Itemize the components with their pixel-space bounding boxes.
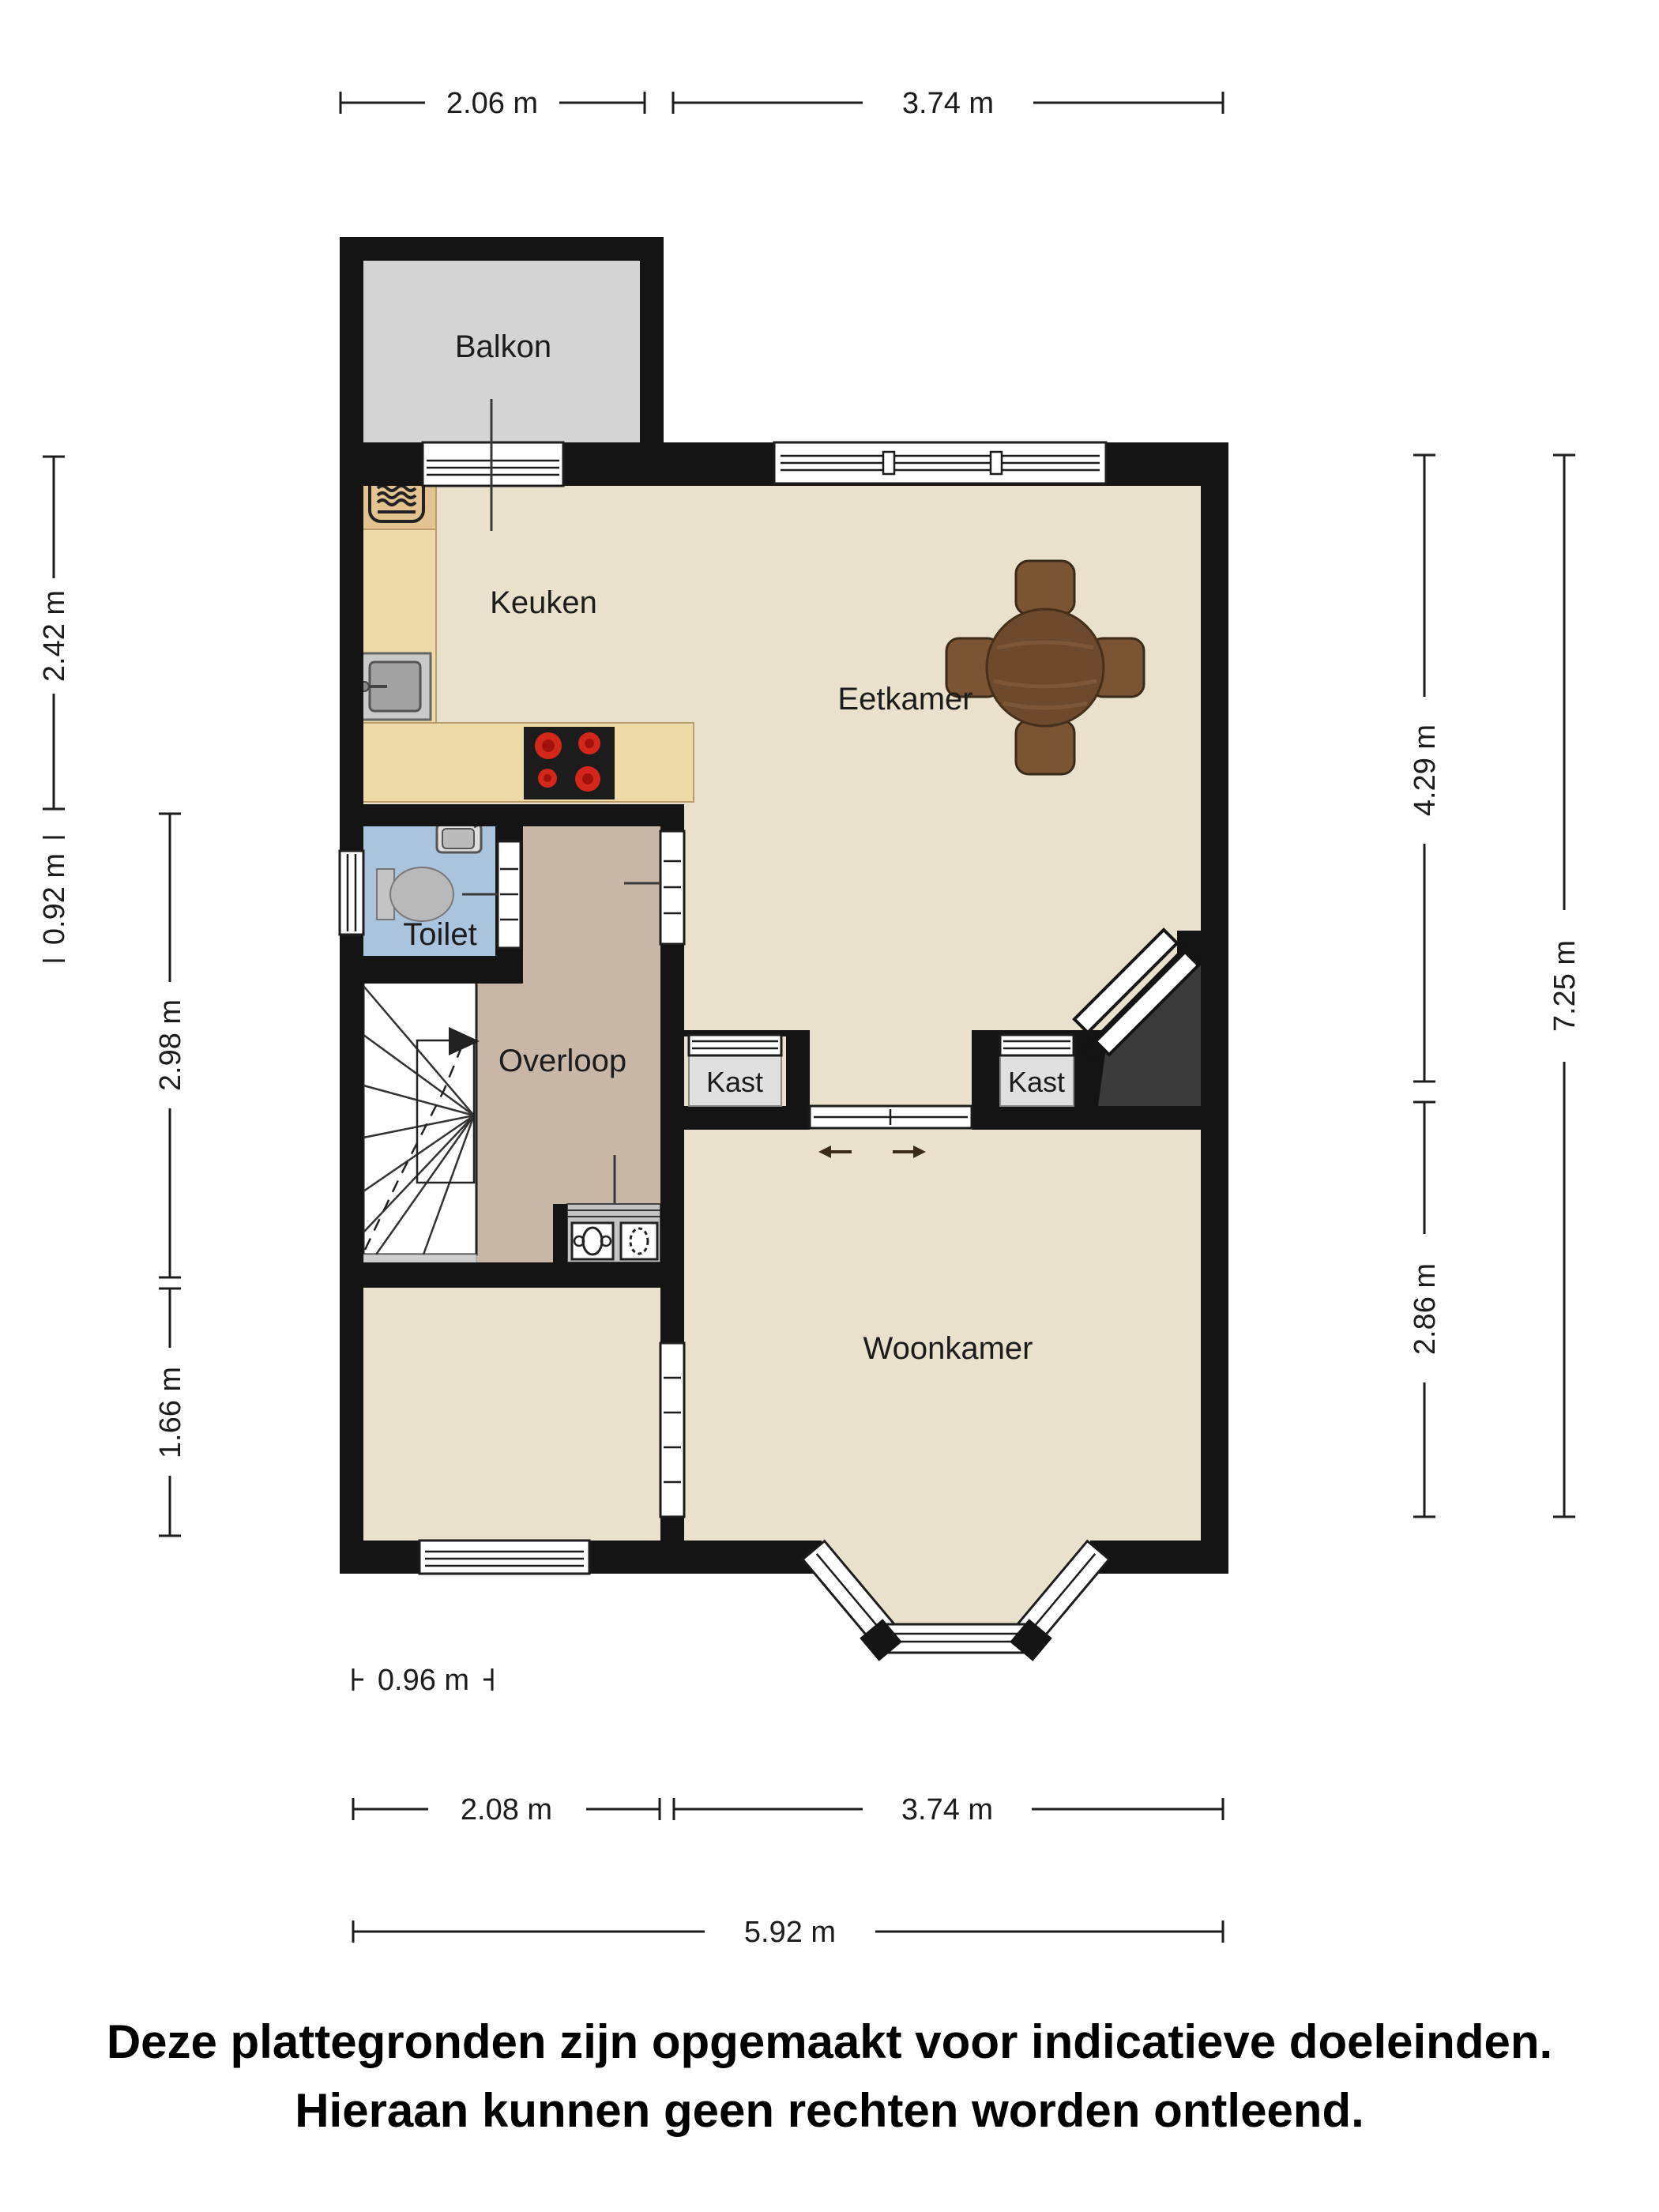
svg-text:3.74 m: 3.74 m [901, 1793, 993, 1826]
wall-balkon-top [340, 237, 664, 261]
wall-under-kast-right [972, 1106, 1201, 1130]
kast-right-front [1000, 1035, 1074, 1055]
disclaimer: Deze plattegronden zijn opgemaakt voor i… [107, 2015, 1552, 2137]
sink-icon [359, 653, 431, 720]
svg-text:2.06 m: 2.06 m [446, 87, 538, 120]
side-room-window [419, 1540, 589, 1574]
side-room-door [660, 1343, 684, 1517]
wall-under-kast-left [684, 1106, 810, 1130]
dimension-right-eetkamer: 4.29 m [1409, 455, 1442, 1082]
cooktop-icon [524, 727, 615, 799]
dimension-left-toilet: 0.92 m [38, 837, 71, 961]
svg-text:2.42 m: 2.42 m [38, 590, 71, 682]
dimension-right-total: 7.25 m [1548, 455, 1582, 1517]
stairs-icon [363, 976, 480, 1266]
wall-bottom-b [589, 1540, 822, 1574]
dimension-bottom-total: 5.92 m [353, 1916, 1223, 1949]
disclaimer-line-2: Hieraan kunnen geen rechten worden ontle… [295, 2084, 1364, 2137]
dimension-bottom-left: 2.08 m [353, 1793, 660, 1826]
wall-toilet-bottom [340, 956, 523, 984]
kast-left-front [689, 1035, 781, 1055]
svg-text:0.92 m: 0.92 m [38, 853, 71, 945]
wall-keuken-toilet [340, 804, 684, 826]
wall-bottom-a [340, 1540, 419, 1574]
label-kast-left: Kast [706, 1066, 763, 1098]
label-overloop: Overloop [498, 1044, 626, 1078]
svg-text:2.86 m: 2.86 m [1409, 1263, 1442, 1355]
dryer-icon [621, 1223, 657, 1259]
label-balkon: Balkon [455, 329, 551, 364]
washer-icon [572, 1223, 613, 1259]
wall-laundry-stub [553, 1204, 567, 1262]
svg-text:5.92 m: 5.92 m [744, 1916, 836, 1949]
dimension-right-woonkamer: 2.86 m [1409, 1102, 1442, 1517]
label-keuken: Keuken [490, 585, 597, 620]
svg-text:2.98 m: 2.98 m [154, 999, 187, 1091]
label-eetkamer: Eetkamer [837, 682, 972, 717]
wall-overloop-bottom [340, 1262, 684, 1288]
svg-text:4.29 m: 4.29 m [1409, 724, 1442, 816]
toilet-window [340, 851, 363, 935]
svg-text:3.74 m: 3.74 m [902, 87, 994, 120]
dimension-left-room: 1.66 m [154, 1288, 187, 1536]
dimension-top-right: 3.74 m [673, 87, 1223, 120]
disclaimer-line-1: Deze plattegronden zijn opgemaakt voor i… [107, 2015, 1552, 2068]
dimension-left-overloop: 2.98 m [154, 814, 187, 1277]
svg-text:7.25 m: 7.25 m [1548, 940, 1582, 1032]
label-kast-right: Kast [1008, 1066, 1065, 1098]
wall-right [1201, 442, 1228, 1572]
dimension-top-left: 2.06 m [340, 87, 645, 120]
eetkamer-window [774, 442, 1106, 483]
washbasin-icon [437, 822, 483, 852]
svg-text:0.96 m: 0.96 m [378, 1664, 469, 1697]
label-woonkamer: Woonkamer [863, 1331, 1033, 1366]
toilet-bowl-icon [377, 867, 453, 921]
floor-plan-page: Balkon Keuken Eetkamer Toilet Overloop K… [0, 0, 1659, 2212]
dimension-bottom-window: 0.96 m [353, 1664, 492, 1697]
wall-bottom-c [1090, 1540, 1228, 1574]
wall-left [340, 442, 363, 1572]
floor-plan-canvas: Balkon Keuken Eetkamer Toilet Overloop K… [0, 0, 1659, 2212]
svg-text:2.08 m: 2.08 m [461, 1793, 552, 1826]
dimension-left-keuken: 2.42 m [38, 457, 71, 809]
label-toilet: Toilet [403, 917, 476, 952]
dimension-bottom-right: 3.74 m [674, 1793, 1223, 1826]
svg-text:1.66 m: 1.66 m [154, 1367, 187, 1458]
